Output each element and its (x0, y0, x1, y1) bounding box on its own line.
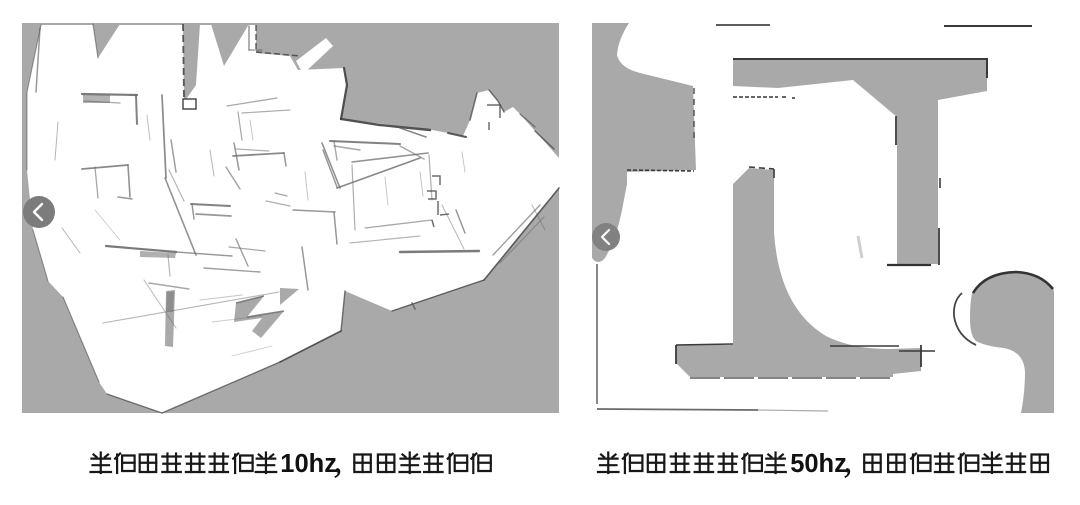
svg-text:10hz: 10hz (280, 450, 337, 478)
svg-text:50hz: 50hz (790, 450, 847, 478)
